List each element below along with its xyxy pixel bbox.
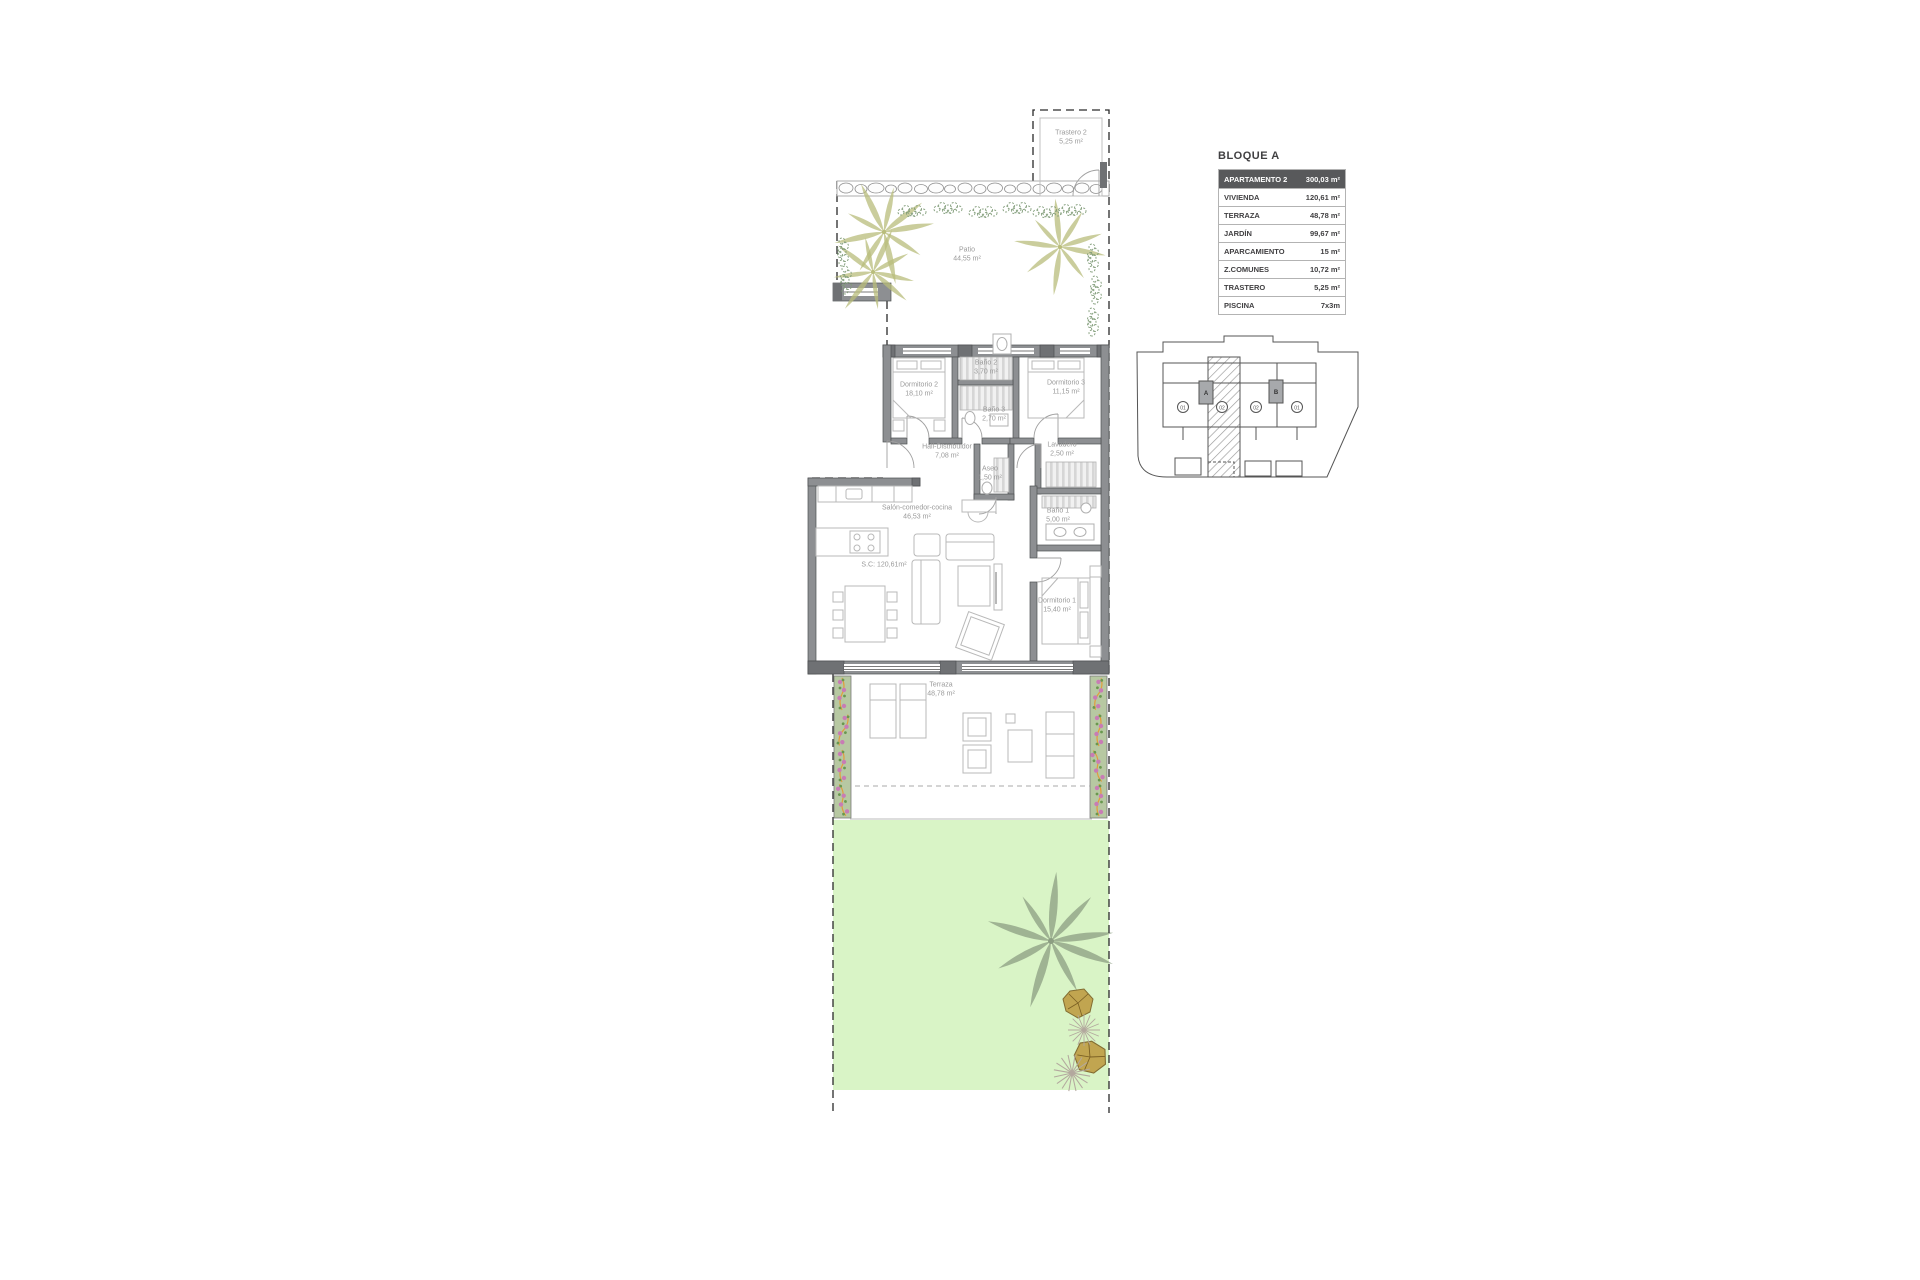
patio-area: [810, 118, 1110, 336]
area-table-row: JARDÍN 99,67 m²: [1219, 224, 1345, 242]
patio-bush-icon: [969, 207, 997, 218]
room-label-aseo: Aseo1,50 m²: [978, 465, 1002, 484]
patio-bush-icon: [1003, 203, 1031, 214]
room-label-salon-comedor-cocina: Salón-comedor-cocina46,53 m²: [882, 504, 952, 523]
room-label-bano-2: Baño 23,70 m²: [974, 359, 998, 378]
unit-label: 01: [1180, 406, 1186, 412]
block-title: BLOQUE A: [1218, 150, 1346, 162]
room-label-patio: Patio44,55 m²: [953, 246, 981, 265]
area-table-row: APARCAMIENTO 15 m²: [1219, 242, 1345, 260]
garden-grass-icon: [1068, 1014, 1100, 1046]
garden-area: [833, 819, 1133, 1094]
room-label-terraza: Terraza48,78 m²: [927, 681, 955, 700]
patio-bush-icon: [1088, 308, 1099, 336]
room-label-lavadero: Lavadero2,50 m²: [1047, 441, 1076, 460]
patio-bush-icon: [1058, 205, 1086, 216]
highlighted-unit: [1208, 357, 1240, 477]
area-table: APARTAMENTO 2 300,03 m² VIVIENDA 120,61 …: [1218, 169, 1346, 315]
site-plan: A B 01 02 02 01: [1137, 336, 1358, 477]
room-label-dormitorio-1: Dormitorio 115,40 m²: [1038, 597, 1076, 616]
area-table-row: Z.COMUNES 10,72 m²: [1219, 260, 1345, 278]
terrace-planters: [834, 676, 1107, 818]
unit-label: 02: [1253, 406, 1259, 412]
patio-bush-icon: [1091, 276, 1102, 304]
core-b-label: B: [1274, 390, 1279, 396]
unit-label: 02: [1219, 406, 1225, 412]
floor-plan-graphics: A B 01 02 02 01: [0, 0, 1920, 1280]
patio-bush-icon: [934, 203, 962, 214]
apartment-total-area: 300,03 m²: [1306, 175, 1340, 184]
core-a-label: A: [1204, 391, 1209, 397]
room-label-sc-total: S.C: 120,61m²: [861, 560, 906, 569]
area-table-row: TERRAZA 48,78 m²: [1219, 206, 1345, 224]
room-label-dormitorio-2: Dormitorio 218,10 m²: [900, 381, 938, 400]
area-table-row: TRASTERO 5,25 m²: [1219, 278, 1345, 296]
room-label-bano-3: Baño 32,70 m²: [982, 406, 1006, 425]
area-table-row: PISCINA 7x3m: [1219, 296, 1345, 314]
room-label-dormitorio-3: Dormitorio 311,15 m²: [1047, 379, 1085, 398]
floor-plan-page: A B 01 02 02 01 Trastero 25,25 m² Patio4…: [0, 0, 1920, 1280]
patio-bush-icon: [1088, 244, 1099, 272]
room-label-trastero-2: Trastero 25,25 m²: [1055, 129, 1087, 148]
room-label-bano-1: Baño 15,00 m²: [1046, 507, 1070, 526]
area-table-row: VIVIENDA 120,61 m²: [1219, 188, 1345, 206]
unit-label: 01: [1294, 406, 1300, 412]
room-label-hall-distribuidor: Hall-Distribuidor7,08 m²: [922, 443, 972, 462]
area-table-header: APARTAMENTO 2 300,03 m²: [1219, 170, 1345, 188]
apartment-name: APARTAMENTO 2: [1224, 175, 1287, 184]
info-panel: BLOQUE A APARTAMENTO 2 300,03 m² VIVIEND…: [1218, 150, 1346, 315]
